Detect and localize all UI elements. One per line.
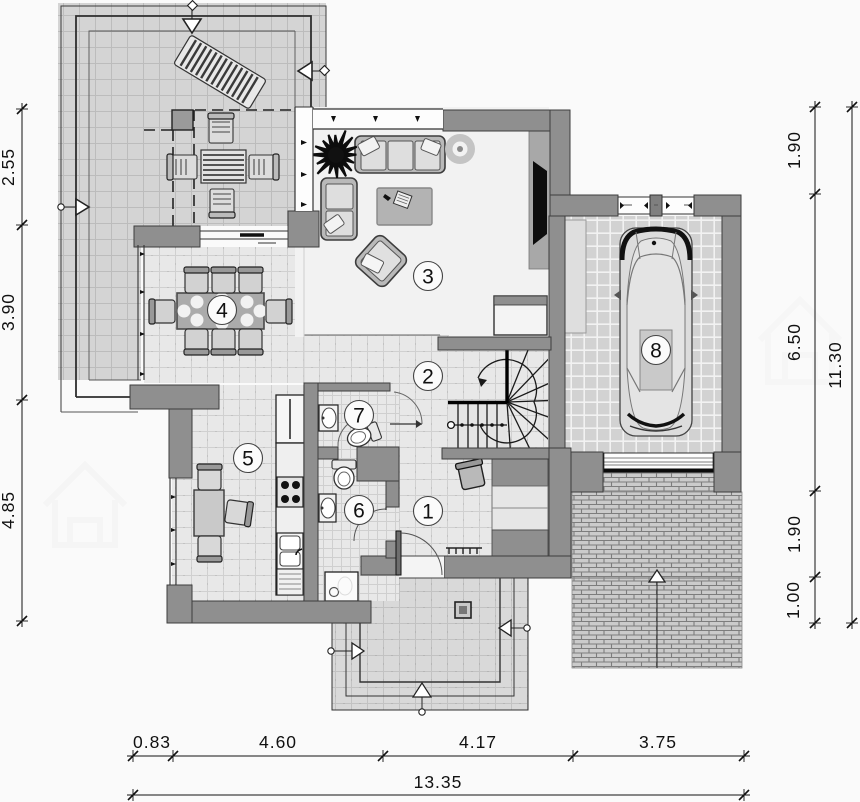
svg-text:0.83: 0.83 [133,732,171,752]
svg-text:3: 3 [422,266,434,289]
svg-text:1.90: 1.90 [784,131,804,169]
svg-text:2.55: 2.55 [0,148,18,186]
svg-text:1.00: 1.00 [783,581,803,619]
svg-text:1.90: 1.90 [784,515,804,553]
svg-text:3.90: 3.90 [0,293,18,331]
svg-text:4: 4 [216,300,228,323]
svg-text:2: 2 [422,366,434,389]
svg-text:5: 5 [242,448,254,471]
svg-text:13.35: 13.35 [414,772,463,792]
svg-text:4.60: 4.60 [259,732,297,752]
svg-text:11.30: 11.30 [825,341,845,389]
svg-text:4.17: 4.17 [459,732,497,752]
svg-text:8: 8 [650,340,662,363]
svg-text:6.50: 6.50 [784,323,804,361]
svg-text:1: 1 [422,501,434,524]
svg-text:7: 7 [353,405,365,428]
svg-text:3.75: 3.75 [639,732,677,752]
svg-text:4.85: 4.85 [0,491,18,529]
svg-text:6: 6 [353,500,365,523]
